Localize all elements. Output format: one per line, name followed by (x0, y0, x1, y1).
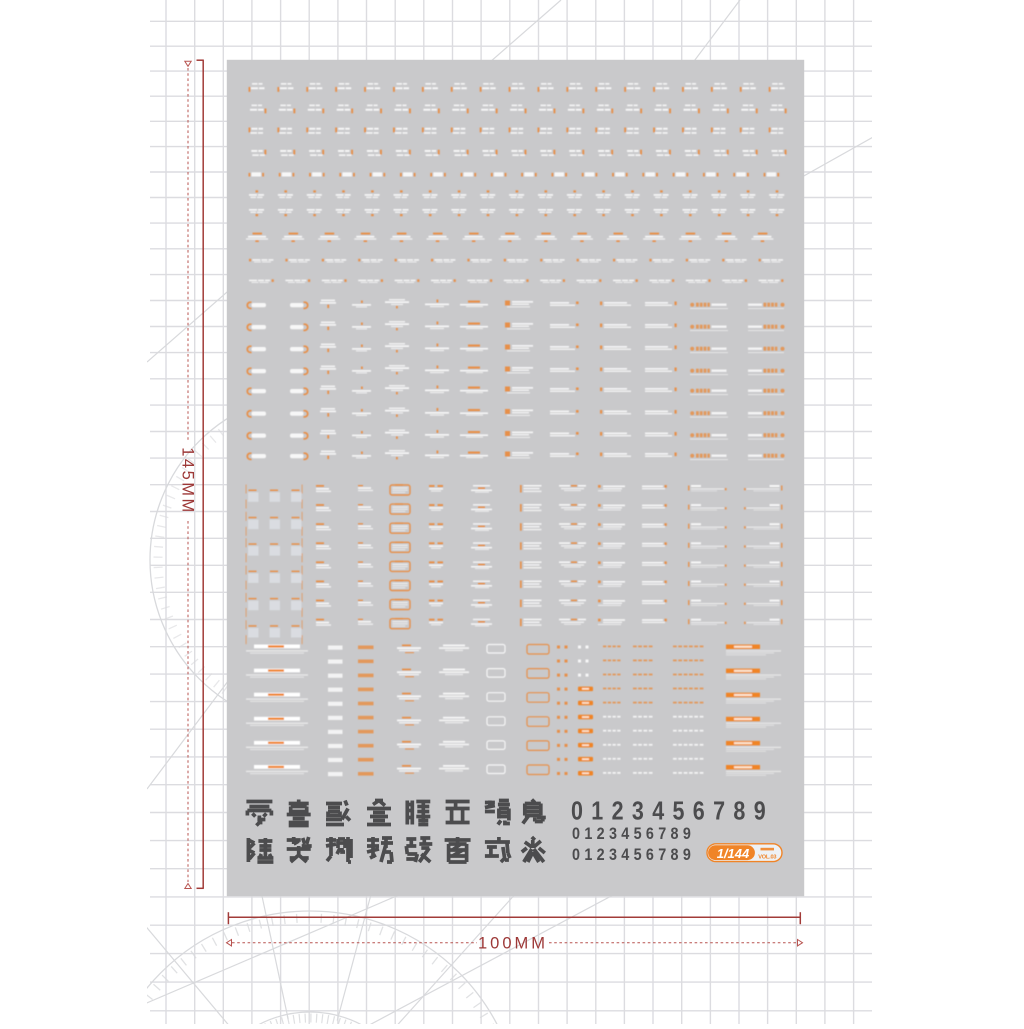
svg-text:0123456789: 0123456789 (571, 797, 774, 827)
svg-text:VOL.03: VOL.03 (758, 854, 776, 860)
svg-text:0123456789: 0123456789 (572, 825, 695, 843)
svg-text:1/144: 1/144 (717, 846, 750, 861)
svg-text:0123456789: 0123456789 (572, 846, 695, 864)
svg-text:100MM: 100MM (478, 935, 548, 953)
svg-text:145MM: 145MM (179, 447, 197, 515)
